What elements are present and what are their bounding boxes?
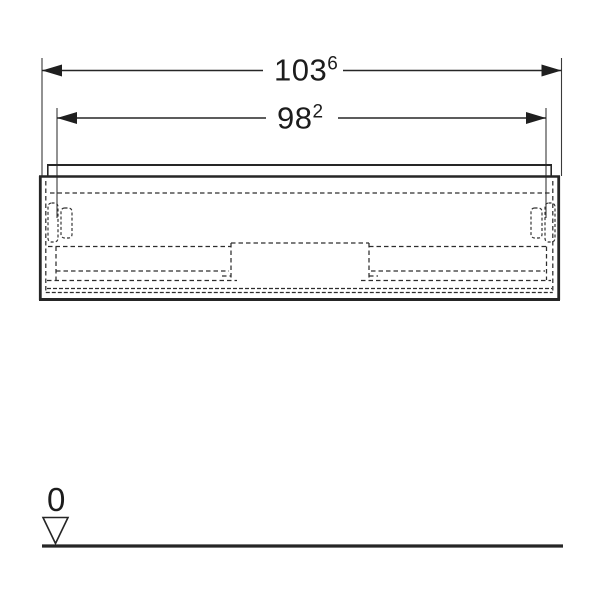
drawer-slide-bracket-right-inner — [531, 208, 542, 238]
technical-drawing-canvas: 1036 982 — [0, 0, 603, 603]
arrowhead-right-icon — [526, 112, 546, 124]
cabinet-hidden-edges — [46, 181, 555, 293]
dimension-inner-width: 982 — [57, 101, 546, 219]
drawer-slide-bracket-left-inner — [61, 208, 72, 238]
arrowhead-right-icon — [542, 65, 562, 77]
zero-level-datum: 0 — [42, 481, 563, 546]
datum-label: 0 — [47, 481, 65, 518]
arrowhead-left-icon — [42, 65, 62, 77]
cabinet-front-view — [39, 164, 560, 300]
datum-triangle-icon — [43, 518, 68, 544]
arrowhead-left-icon — [57, 112, 77, 124]
drawing-svg: 1036 982 — [0, 0, 603, 603]
